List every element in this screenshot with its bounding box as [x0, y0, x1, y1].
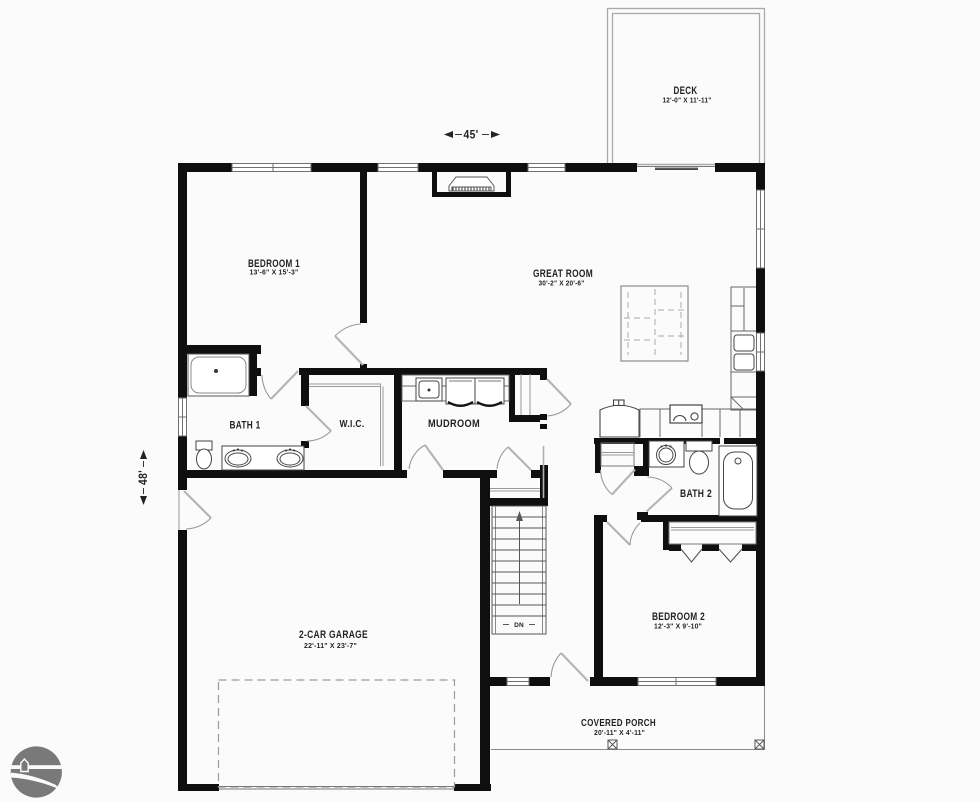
svg-text:45': 45': [464, 128, 479, 142]
svg-text:BATH 2: BATH 2: [680, 488, 712, 500]
svg-text:13'-6" X 15'-3": 13'-6" X 15'-3": [250, 270, 299, 277]
svg-text:12'-3" X 9'-10": 12'-3" X 9'-10": [654, 624, 702, 631]
svg-text:DN: DN: [514, 622, 524, 629]
svg-text:W.I.C.: W.I.C.: [340, 419, 365, 430]
svg-text:22'-11" X 23'-7": 22'-11" X 23'-7": [304, 643, 357, 650]
svg-text:COVERED PORCH: COVERED PORCH: [581, 718, 656, 729]
svg-text:MUDROOM: MUDROOM: [428, 418, 480, 430]
svg-text:BEDROOM 2: BEDROOM 2: [652, 611, 705, 623]
svg-text:48': 48': [136, 470, 150, 485]
svg-text:DECK: DECK: [674, 85, 698, 97]
svg-text:BEDROOM 1: BEDROOM 1: [248, 258, 300, 270]
svg-text:BATH 1: BATH 1: [230, 420, 261, 432]
svg-text:20'-11" X 4'-11": 20'-11" X 4'-11": [594, 730, 645, 737]
svg-text:30'-2" X 20'-6": 30'-2" X 20'-6": [539, 281, 585, 288]
svg-text:12'-0" X 11'-11": 12'-0" X 11'-11": [663, 98, 712, 105]
svg-text:GREAT ROOM: GREAT ROOM: [533, 268, 593, 280]
svg-text:2-CAR GARAGE: 2-CAR GARAGE: [299, 629, 368, 641]
